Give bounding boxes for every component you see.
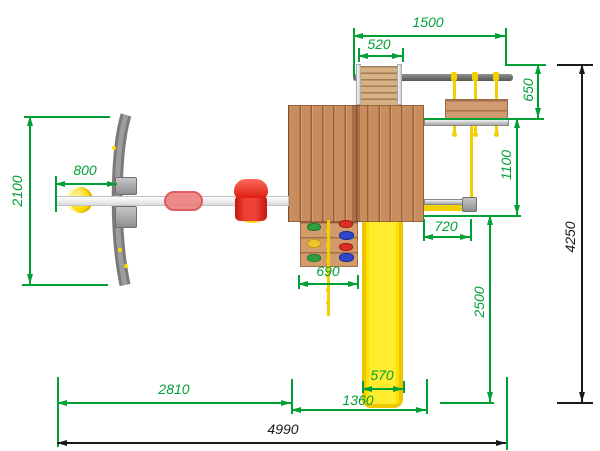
entry-ladder xyxy=(361,66,397,105)
ladder-rail-left xyxy=(356,64,361,105)
ladder-rail-right xyxy=(397,64,402,105)
side-rail-upper xyxy=(424,119,509,126)
climbing-hold xyxy=(339,243,353,251)
bench-hook-ring xyxy=(473,132,478,137)
toddler-swing-seat xyxy=(235,195,267,221)
trapeze-swing xyxy=(164,191,203,211)
swing-rope xyxy=(495,79,498,100)
bench-hook-ring xyxy=(494,132,499,137)
bolt xyxy=(124,264,128,268)
swing-rope xyxy=(453,79,456,100)
rope-anchor-block xyxy=(462,197,477,212)
climbing-hold xyxy=(339,231,354,240)
rope-knot xyxy=(326,229,330,233)
climbing-hold xyxy=(339,220,353,228)
rope-knot xyxy=(326,301,330,305)
hanging-rope xyxy=(470,126,473,200)
beam-clamp-upper xyxy=(115,177,137,195)
nest-swing-bench xyxy=(445,99,508,119)
climbing-hold xyxy=(339,253,354,262)
climbing-hold xyxy=(307,223,321,231)
bolt xyxy=(112,146,116,150)
swing-rope xyxy=(474,79,477,100)
bench-hook-ring xyxy=(452,132,457,137)
platform-seam xyxy=(352,105,360,222)
toddler-seat-back xyxy=(234,179,268,198)
climbing-hold xyxy=(307,239,321,248)
beam-clamp-lower xyxy=(115,206,137,228)
playground-plan-drawing: 2100 800 1500 520 650 1100 xyxy=(0,0,600,451)
climbing-hold xyxy=(307,254,321,262)
bolt xyxy=(118,248,122,252)
rope-knot xyxy=(326,288,330,292)
rope-knot xyxy=(326,244,330,248)
